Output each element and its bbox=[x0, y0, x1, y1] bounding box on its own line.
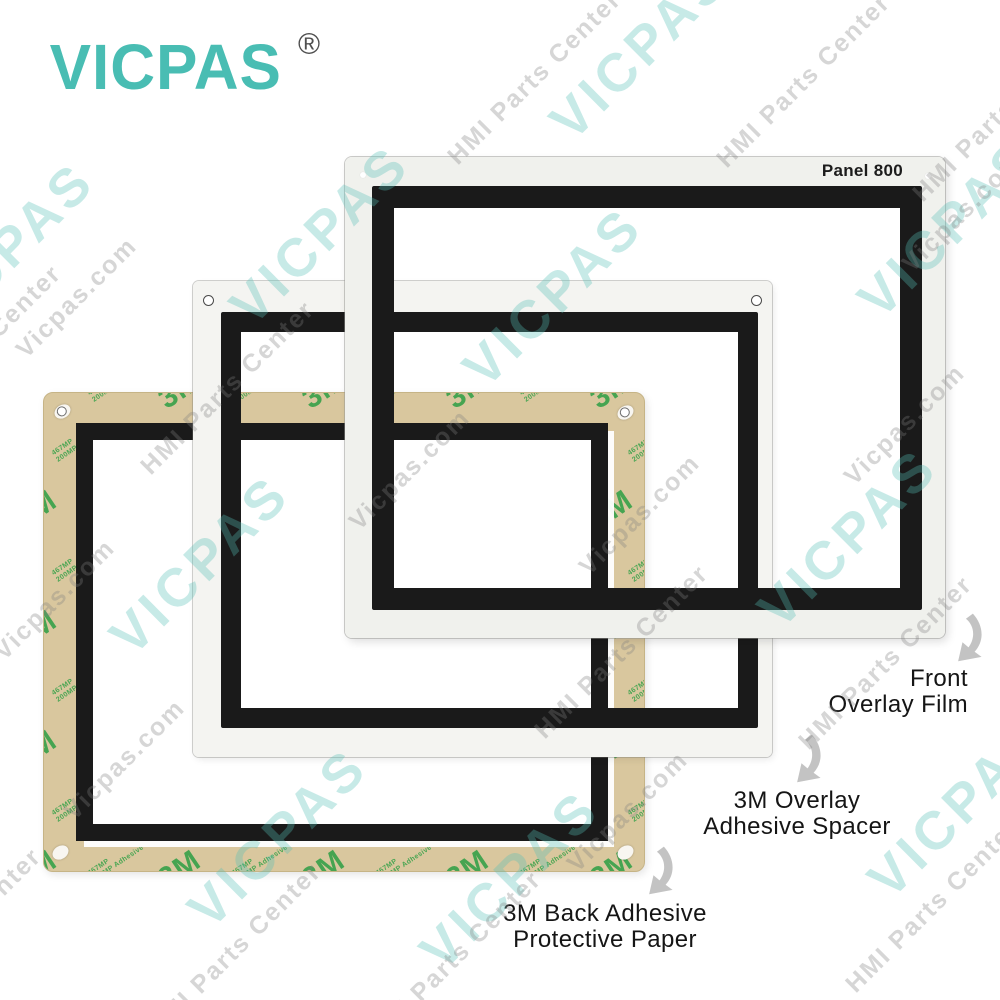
callout-adhesive-spacer: 3M Overlay Adhesive Spacer bbox=[688, 788, 906, 840]
callout-front-overlay-film: Front Overlay Film bbox=[770, 666, 968, 718]
front-overlay-film: Panel 800 bbox=[345, 157, 945, 638]
mounting-hole bbox=[203, 295, 214, 306]
mounting-dot bbox=[360, 172, 366, 178]
tape-3m-logo: 3M bbox=[152, 844, 207, 871]
curved-arrow bbox=[624, 844, 676, 896]
watermark-center: HMI Parts Center bbox=[142, 857, 328, 1000]
callout-line: Overlay Film bbox=[770, 692, 968, 718]
callout-line: Front bbox=[770, 666, 968, 692]
tape-3m-logo: 3M bbox=[440, 844, 495, 871]
registered-mark-icon: ® bbox=[298, 28, 320, 62]
callout-line: 3M Back Adhesive bbox=[493, 901, 717, 927]
tape-3m-logo: 3M bbox=[296, 844, 351, 871]
watermark-brand: VICPAS bbox=[0, 150, 107, 354]
tape-code-text: 467MP 200MP Adhesive bbox=[519, 837, 578, 871]
tape-code-text: 467MP 200MP Adhesive bbox=[375, 837, 434, 871]
panel-model-label: Panel 800 bbox=[822, 161, 903, 181]
tape-code-text: 467MP 200MP Adhesive bbox=[87, 837, 146, 871]
watermark-site: Vicpas.com bbox=[11, 232, 144, 365]
watermark-center: HMI Parts Center bbox=[711, 0, 897, 174]
callout-back-adhesive-paper: 3M Back Adhesive Protective Paper bbox=[493, 901, 717, 953]
tape-code-text: 467MP 200MP Adhesive bbox=[627, 777, 644, 824]
tape-3m-logo: 3M bbox=[44, 724, 63, 777]
mounting-dot bbox=[925, 173, 931, 179]
brand-logo-text: VICPAS bbox=[50, 30, 282, 104]
product-diagram: 3M467MP 200MP Adhesive3M467MP 200MP Adhe… bbox=[0, 0, 1000, 1000]
watermark-center: HMI Parts Center bbox=[442, 0, 628, 171]
tape-code-text: 467MP 200MP Adhesive bbox=[87, 393, 146, 405]
film-black-frame bbox=[372, 186, 922, 610]
curved-arrow bbox=[933, 611, 985, 663]
tape-3m-logo: 3M bbox=[44, 484, 63, 537]
watermark-center: HMI Parts Center bbox=[840, 813, 1000, 999]
brand-logo: VICPAS ® bbox=[46, 30, 286, 104]
watermark-brand: VICPAS bbox=[538, 0, 742, 152]
tape-3m-logo: 3M bbox=[44, 604, 63, 657]
callout-line: Adhesive Spacer bbox=[688, 814, 906, 840]
callout-line: 3M Overlay bbox=[688, 788, 906, 814]
watermark-center: HMI Parts Center bbox=[0, 842, 48, 1000]
tape-code-text: 467MP 200MP Adhesive bbox=[231, 837, 290, 871]
curved-arrow bbox=[772, 732, 824, 784]
callout-line: Protective Paper bbox=[493, 927, 717, 953]
mounting-hole-ring bbox=[55, 404, 69, 418]
